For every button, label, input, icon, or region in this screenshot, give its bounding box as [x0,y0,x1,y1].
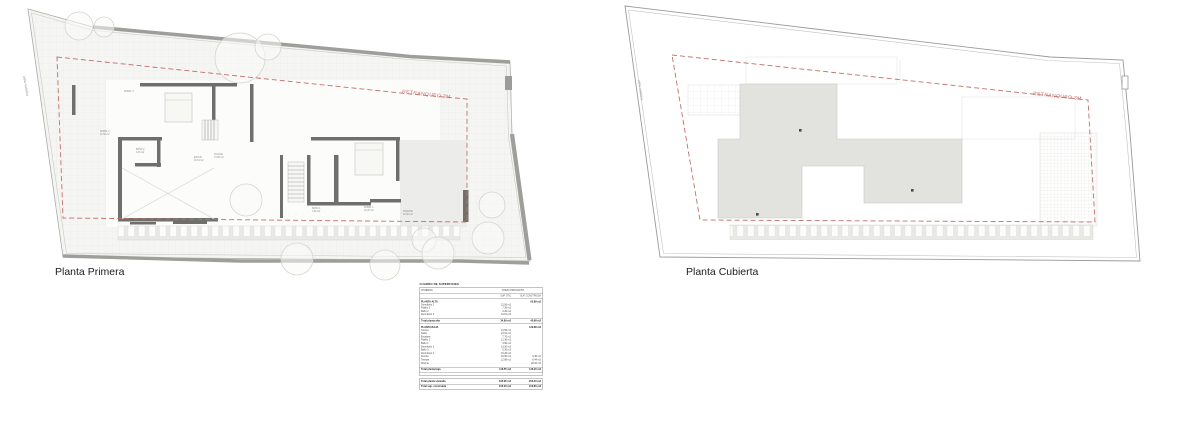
plan-planta-primera: RETRANQUEO 3M valla metálica DORM. 212.5… [22,9,530,280]
surface-table-box: VIVIENDA COMO PROYECTO SUP. ÚTIL SUP. CO… [419,288,543,376]
gate-pier [1122,76,1128,89]
room-label: BAÑO 1 [312,207,321,210]
surface-table-col-header: SUP. ÚTIL SUP. CONSTRUIDA [420,294,543,299]
plan-planta-cubierta: RETRANQUEO 3M valla metálica Planta Cubi… [625,6,1140,278]
room-label: 23.61 m2 [194,160,204,162]
room-label: 13.26 m2 [364,210,374,212]
surface-table-body: PLANTA ALTA95.89 m2Dormitorio 212.56 m2P… [420,301,543,373]
table-row: Total sup. construida195.20 m2169.80 m2 [420,384,543,389]
pool-deck-band-roofplan [730,225,1093,240]
room-label: DORM. 2 [100,131,110,133]
wall-pier [505,76,512,90]
table-row: Dormitorio 310.61 m2 [420,314,543,317]
surface-table: CUADRO DE SUPERFICIES VIVIENDA COMO PROY… [419,283,543,390]
room-label: PORCHE [403,211,413,213]
table-row: Piscina28.00 m2 [420,362,543,365]
room-label: 10.60 m2 [403,214,413,216]
building-floor [106,80,440,227]
group-right-label: COMO PROYECTO [485,289,541,293]
col-util-label: SUP. ÚTIL [485,294,511,298]
room-label: DORM. 1 [364,207,374,209]
plan-title-planta-primera: Planta Primera [55,266,125,278]
surface-table-grand-totals: Total planta vivienda195.95 m2203.40 m2T… [419,379,543,390]
pool-deck-band [118,226,460,240]
paving-hatch-left [688,85,740,115]
group-left-label: VIVIENDA [421,289,485,293]
room-label: BAÑO 2 [136,148,145,151]
drawing-sheet: RETRANQUEO 3M valla metálica DORM. 212.5… [0,0,1200,424]
room-label: COCINA [214,153,223,156]
fence-label-left: valla metálica [22,75,30,96]
plans-canvas: RETRANQUEO 3M valla metálica DORM. 212.5… [0,0,1200,282]
room-label: 12.56 m2 [100,134,110,136]
room-label: DORM. 3 [124,91,134,93]
col-const-label: SUP. CONSTRUIDA [511,294,541,298]
room-label: 3.96 m2 [312,211,321,213]
table-row: Total planta alta34.89 m240.89 m2 [420,318,543,324]
paving-hatch-right [1040,133,1097,226]
plan-title-planta-cubierta: Planta Cubierta [686,266,759,278]
room-label: 14.56 m2 [214,157,224,159]
room-label: 4.36 m2 [136,152,145,154]
room-label: ESTAR [194,156,202,159]
table-row: Total planta baja118.55 m2146.20 m2 [420,367,543,373]
surface-table-title: CUADRO DE SUPERFICIES [420,283,544,286]
